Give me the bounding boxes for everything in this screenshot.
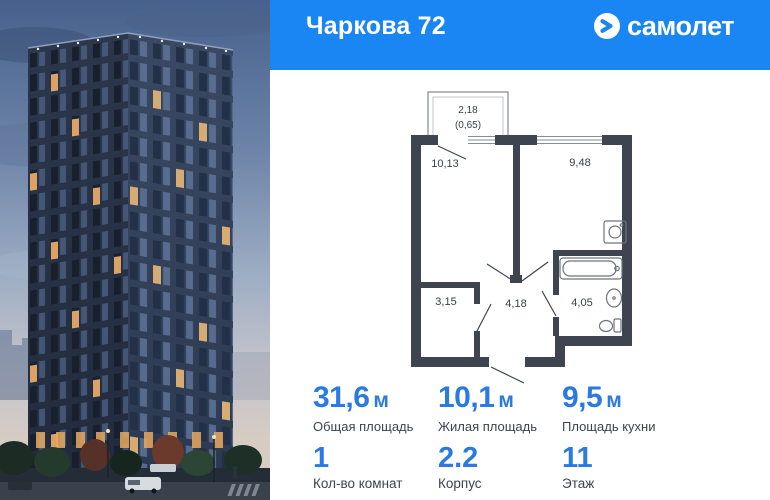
floor-value: 11 [562, 445, 770, 472]
living-area-label: Жилая площадь [438, 419, 562, 434]
building-value: 2.2 [438, 445, 562, 472]
living-area-value: 10,1 [438, 381, 494, 414]
flat-details: 1 Кол-во комнат 2.2 Корпус 11 Этаж [270, 445, 770, 491]
bathtub-icon [560, 258, 622, 279]
room-label-bathroom: 4,05 [571, 297, 592, 309]
kitchen-area-label: Площадь кухни [562, 419, 770, 434]
room-label-wardrobe: 3,15 [435, 296, 456, 308]
rooms-count-value: 1 [313, 445, 438, 472]
sink-icon [607, 289, 622, 307]
floor-label: Этаж [562, 476, 770, 491]
total-area-value: 31,6 [313, 381, 369, 414]
stat-kitchen-area: 9,5м Площадь кухни [562, 384, 770, 434]
balcony-area-label: 2,18 [458, 105, 478, 116]
area-stats: 31,6м Общая площадь 10,1м Жилая площадь … [270, 384, 770, 434]
brand-name: самолет [627, 11, 734, 42]
living-area-unit: м [498, 389, 513, 412]
listing-card: Чаркова 72 самолет 2,18 (0,65) [0, 0, 770, 500]
rooms-count-label: Кол-во комнат [313, 476, 438, 491]
toilet-icon [600, 319, 622, 332]
page-title: Чаркова 72 [306, 12, 446, 41]
total-area-unit: м [373, 389, 388, 412]
header: Чаркова 72 самолет [270, 0, 770, 70]
balcony: 2,18 (0,65) [428, 92, 508, 136]
detail-floor: 11 Этаж [562, 445, 770, 491]
info-panel: Чаркова 72 самолет 2,18 (0,65) [270, 0, 770, 500]
kitchen-area-value: 9,5 [562, 381, 602, 414]
brand-logo: самолет [594, 11, 734, 42]
stat-total-area: 31,6м Общая площадь [313, 384, 438, 434]
detail-rooms: 1 Кол-во комнат [313, 445, 438, 491]
stat-living-area: 10,1м Жилая площадь [438, 384, 562, 434]
building-label: Корпус [438, 476, 562, 491]
room-label-kitchen: 9,48 [569, 157, 590, 169]
total-area-label: Общая площадь [313, 419, 438, 434]
room-label-living: 10,13 [431, 158, 459, 170]
room-label-hallway: 4,18 [505, 298, 526, 310]
kitchen-area-unit: м [606, 389, 621, 412]
door-swings [438, 146, 556, 383]
samolet-arrow-icon [594, 13, 620, 39]
detail-building: 2.2 Корпус [438, 445, 562, 491]
pedestrian [233, 466, 237, 479]
balcony-area-reduced-label: (0,65) [455, 120, 481, 131]
floor-plan: 2,18 (0,65) [270, 70, 770, 385]
building-photo [0, 0, 270, 500]
